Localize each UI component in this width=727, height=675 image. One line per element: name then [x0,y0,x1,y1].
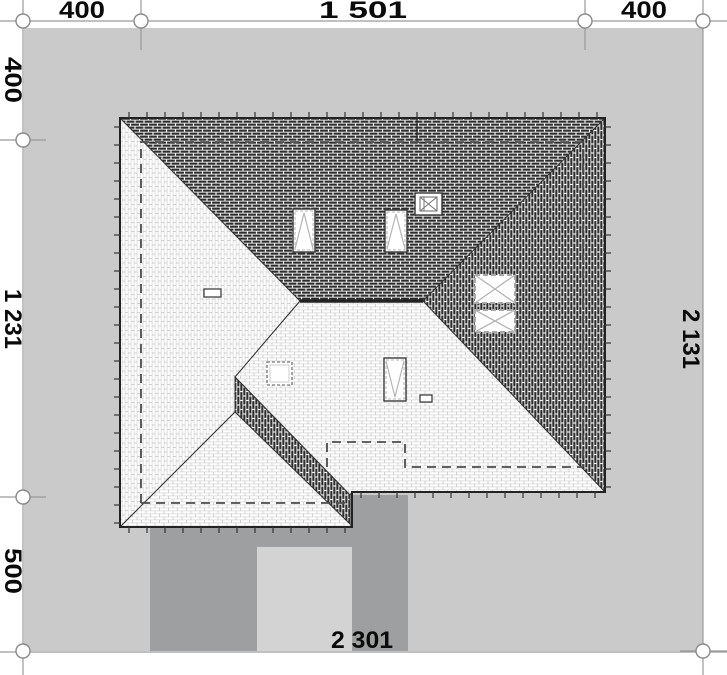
driveway-middle [257,527,352,547]
roof-window-3 [384,358,406,401]
dim-bottom: 2 301 [331,627,393,654]
roof-layer [114,112,611,533]
dimension-node [696,14,710,28]
dimension-node [16,133,30,147]
dim-top-left: 400 [59,0,105,24]
dim-right: 2 131 [677,309,704,369]
dim-left-lower: 500 [0,548,26,594]
dimension-node [578,14,592,28]
roof-vent-1 [204,289,221,297]
dimension-node [696,644,710,658]
dim-left-middle: 1 231 [0,289,26,349]
roof-vent-2-body [420,395,432,402]
dimension-node [16,644,30,658]
dimension-node [16,490,30,504]
roof-vent-1-body [204,289,221,297]
dim-left-upper: 400 [0,57,26,103]
dimension-node [134,14,148,28]
roof-window-2 [385,210,407,252]
roof-hatch-1 [475,275,515,303]
site-plan-drawing: 400 1 501 400 400 1 231 500 2 131 2 301 [0,0,727,675]
dim-top-center: 1 501 [319,0,407,24]
roof-vent-2 [420,395,432,402]
driveway-left [150,527,257,651]
roof-window-1 [293,209,315,252]
roof-plan-page: 400 1 501 400 400 1 231 500 2 131 2 301 [0,0,727,675]
flat-skylight [267,362,292,385]
dim-top-right: 400 [621,0,667,24]
dimension-node [16,14,30,28]
roof-hatch-2 [475,310,515,332]
chimney [415,193,442,215]
